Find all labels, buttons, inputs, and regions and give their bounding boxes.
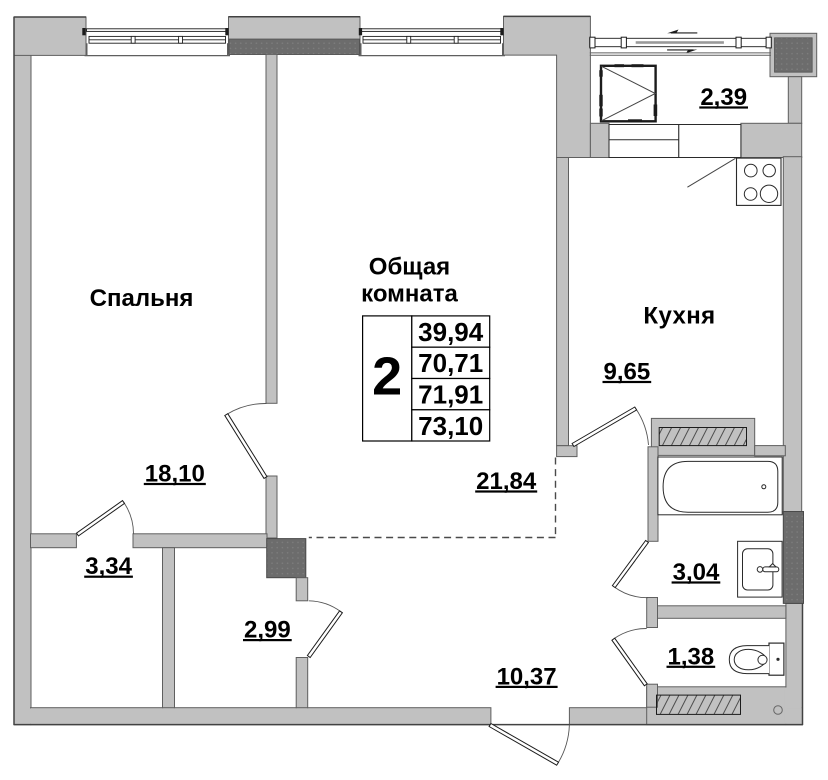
svg-text:73,10: 73,10 bbox=[418, 411, 483, 441]
svg-text:2: 2 bbox=[372, 347, 402, 407]
svg-text:71,91: 71,91 bbox=[418, 380, 483, 410]
svg-text:39,94: 39,94 bbox=[418, 317, 484, 347]
svg-text:комната: комната bbox=[361, 281, 458, 308]
svg-text:70,71: 70,71 bbox=[418, 348, 483, 378]
svg-text:Общая: Общая bbox=[369, 254, 450, 281]
svg-text:Спальня: Спальня bbox=[90, 285, 194, 312]
svg-text:Кухня: Кухня bbox=[643, 303, 715, 330]
